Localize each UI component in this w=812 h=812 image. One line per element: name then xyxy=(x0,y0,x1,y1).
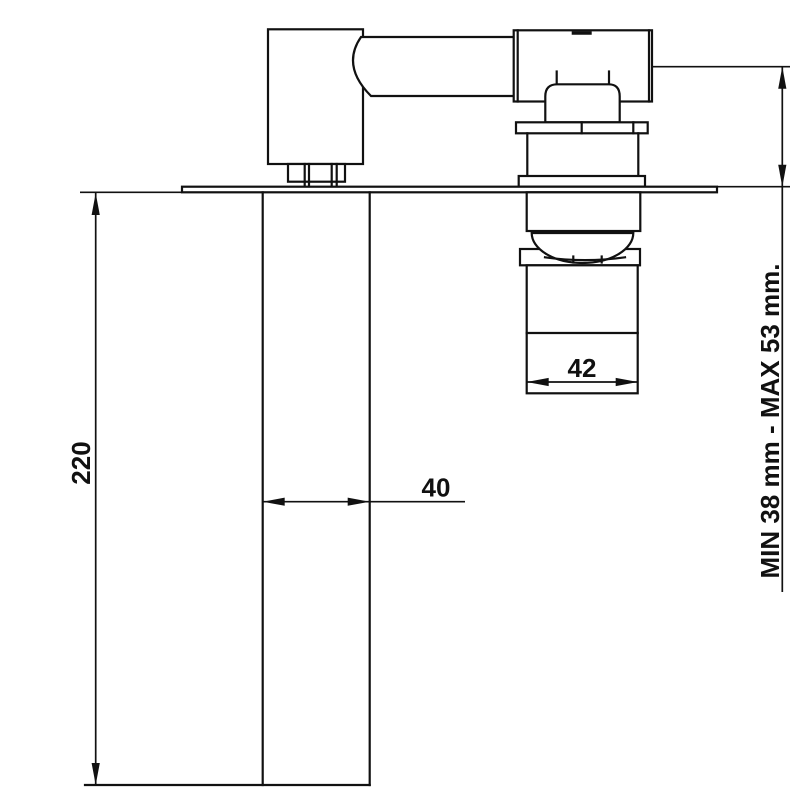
dim-220-label: 220 xyxy=(66,441,96,484)
valve-housing xyxy=(527,133,638,176)
handle-valve-body-outline xyxy=(527,192,641,231)
spout-tube xyxy=(85,192,370,785)
wall-plate xyxy=(80,187,790,193)
dim-depth-arrow-up xyxy=(778,67,786,89)
handle-valve-body xyxy=(527,192,641,231)
dim-40-arrow-left xyxy=(263,498,285,506)
inlet-fittings xyxy=(288,164,345,187)
dimension-spout-width-40: 40 xyxy=(263,473,465,506)
base-flange-outline xyxy=(519,176,645,187)
faucet-dimension-drawing: 220 40 42 MIN 38 mm - MAX 53 mm. xyxy=(0,0,812,812)
supply-pipe xyxy=(353,37,515,96)
spout-body-block xyxy=(268,29,363,164)
dim-40-arrow-right xyxy=(348,498,370,506)
dim-220-arrow-down xyxy=(92,763,100,785)
dimension-wall-depth: MIN 38 mm - MAX 53 mm. xyxy=(652,67,790,592)
neck-flange xyxy=(516,122,648,133)
dim-42-label: 42 xyxy=(568,353,597,383)
dimension-projection-220: 220 xyxy=(66,193,100,785)
neck-outline xyxy=(545,84,619,122)
handle-ball-joint xyxy=(532,233,634,263)
dim-220-arrow-up xyxy=(92,193,100,215)
dim-depth-label: MIN 38 mm - MAX 53 mm. xyxy=(755,264,785,579)
neck xyxy=(545,84,619,122)
base-flange xyxy=(519,176,645,187)
dim-40-label: 40 xyxy=(422,473,451,503)
technical-drawing-page: 220 40 42 MIN 38 mm - MAX 53 mm. xyxy=(0,0,812,812)
supply-pipe-outline xyxy=(353,37,515,96)
dim-depth-arrow-down xyxy=(778,165,786,187)
spout-body-outline xyxy=(268,29,363,164)
